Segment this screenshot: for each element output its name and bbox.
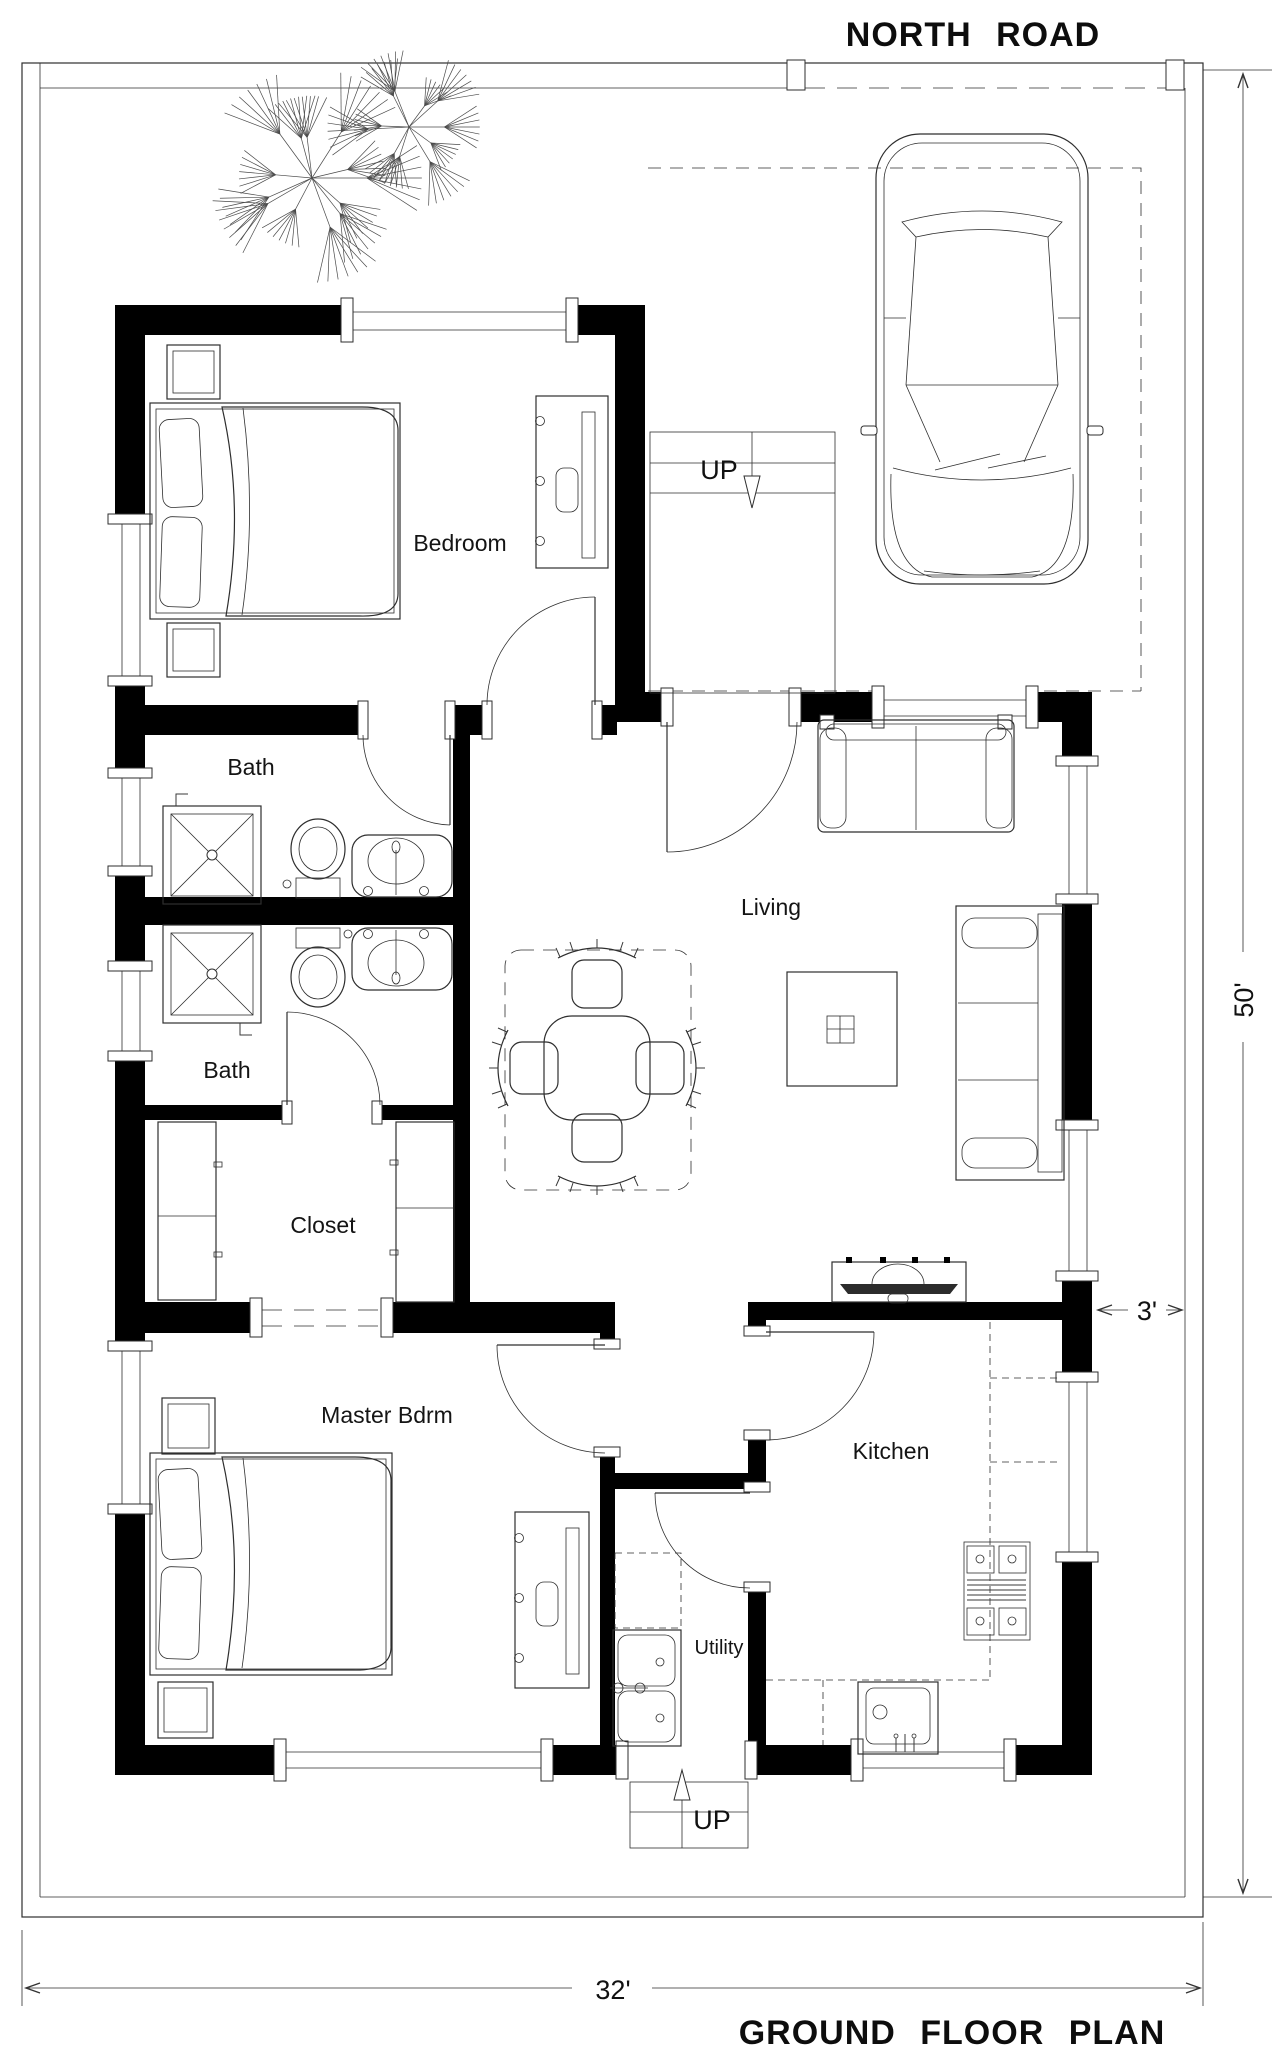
dimension-setback-label: 3': [1137, 1296, 1157, 1326]
sink-icon: [352, 835, 452, 897]
shower-icon: [163, 794, 261, 904]
staircase-upper: UP: [650, 432, 835, 693]
window-icon: [108, 514, 152, 686]
room-label-master: Master Bdrm: [321, 1402, 453, 1428]
room-label-closet: Closet: [290, 1212, 356, 1238]
window-icon: [108, 768, 152, 876]
door-icon: [655, 1493, 750, 1588]
window-icon: [872, 686, 1038, 728]
car-icon: [861, 134, 1103, 584]
dimension-setback-3ft: 3': [1098, 1296, 1182, 1326]
door-icon: [487, 597, 595, 705]
window-icon: [108, 961, 152, 1061]
window-icon: [274, 1739, 553, 1781]
laundry-sink-icon: [610, 1630, 681, 1746]
washer-icon: [615, 1553, 681, 1628]
shower-icon: [163, 925, 261, 1035]
loveseat-sofa-icon: [818, 715, 1014, 832]
toilet-icon: [283, 819, 345, 898]
window-icon: [1056, 1372, 1098, 1562]
double-bed-icon: [150, 403, 400, 619]
dining-set-icon: [489, 939, 705, 1195]
tree-icon: [213, 73, 422, 283]
dimension-width-label: 32': [595, 1975, 630, 2005]
ground-floor-plan-svg: 50' 32' 3': [0, 0, 1280, 2068]
window-icon: [108, 1341, 152, 1514]
tv-console-icon: [832, 1257, 966, 1303]
sink-icon: [352, 928, 452, 990]
closet-opening: [250, 1298, 393, 1337]
window-icon: [1056, 756, 1098, 904]
doors: [250, 597, 874, 1779]
room-label-bath-lower: Bath: [203, 1057, 250, 1083]
double-bed-icon: [150, 1453, 392, 1675]
room-label-kitchen: Kitchen: [853, 1438, 930, 1464]
nightstand-icon: [167, 345, 220, 677]
dimension-width-32ft: 32': [22, 1922, 1203, 2006]
staircase-lower: UP: [630, 1770, 748, 1848]
door-icon: [766, 1332, 874, 1440]
room-label-living: Living: [741, 894, 801, 920]
stairs-up-label: UP: [693, 1805, 731, 1835]
floor-plan-canvas: 50' 32' 3': [0, 0, 1280, 2068]
carport-outline: [648, 168, 1141, 691]
room-label-utility: Utility: [695, 1637, 744, 1659]
walls: [115, 305, 1092, 1775]
door-icon: [363, 735, 450, 825]
sofa-icon: [956, 906, 1064, 1180]
page-title: GROUND FLOOR PLAN: [739, 2014, 1166, 2052]
room-label-bedroom: Bedroom: [413, 530, 506, 556]
road-title: NORTH ROAD: [846, 16, 1100, 54]
dresser-icon: [515, 1512, 590, 1688]
window-icon: [851, 1739, 1016, 1781]
door-icon: [287, 1012, 380, 1105]
dresser-icon: [536, 396, 609, 568]
door-icon: [497, 1345, 605, 1453]
coffee-table-icon: [787, 972, 897, 1086]
dimension-depth-label: 50': [1229, 982, 1259, 1017]
room-label-bath-upper: Bath: [227, 754, 274, 780]
toilet-icon: [291, 928, 352, 1007]
stove-icon: [964, 1542, 1030, 1640]
stairs-up-label: UP: [700, 455, 738, 485]
gate-post-icon: [787, 60, 805, 90]
door-icon: [667, 722, 797, 852]
gate-post-icon: [1166, 60, 1184, 90]
window-icon: [341, 298, 578, 342]
dimension-depth-50ft: 50': [1203, 70, 1272, 1897]
